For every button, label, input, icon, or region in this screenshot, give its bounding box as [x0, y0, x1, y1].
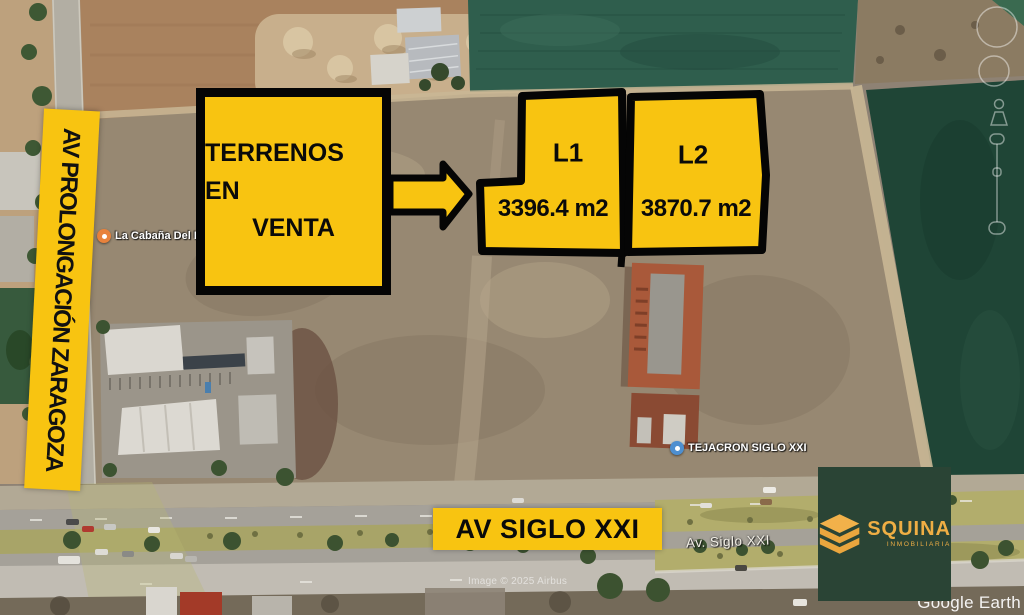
road-name-label: Av. Siglo XXI: [686, 533, 771, 551]
commercial-complex: [96, 320, 296, 486]
lot-l1-area: 3396.4 m2: [498, 195, 608, 223]
agency-logo-card: SQUINA INMOBILIARIA: [818, 467, 951, 601]
sign-line-1: TERRENOS EN: [205, 135, 382, 210]
left-road-banner-text: AV PROLONGACIÓN ZARAGOZA: [39, 127, 85, 472]
lot-l1-id: L1: [553, 138, 583, 169]
agency-tagline: INMOBILIARIA: [887, 542, 951, 549]
agency-name: SQUINA: [867, 519, 951, 539]
business-poi-label: TEJACRON SIGLO XXI: [688, 442, 807, 454]
sign-line-2: VENTA: [252, 210, 335, 248]
imagery-attribution: Image © 2025 Airbus: [468, 576, 567, 587]
agency-logo-text: SQUINA INMOBILIARIA: [867, 519, 951, 549]
lot-l2-shape: [628, 94, 766, 252]
lot-l2-id: L2: [678, 140, 708, 171]
tile-roof-building: [619, 263, 704, 450]
business-poi: TEJACRON SIGLO XXI: [670, 441, 807, 455]
restaurant-poi: La Cabaña Del Llo: [97, 229, 210, 243]
business-poi-icon: [670, 441, 684, 455]
bottom-road-banner-text: AV SIGLO XXI: [455, 514, 639, 545]
real-estate-ad-screenshot: AV PROLONGACIÓN ZARAGOZA TERRENOS EN VEN…: [0, 0, 1024, 615]
agency-logo-icon: [818, 511, 861, 557]
terrenos-en-venta-sign: TERRENOS EN VENTA: [196, 88, 391, 295]
restaurant-poi-icon: [97, 229, 111, 243]
bottom-road-banner: AV SIGLO XXI: [433, 508, 662, 550]
lot-l2-area: 3870.7 m2: [641, 195, 751, 223]
